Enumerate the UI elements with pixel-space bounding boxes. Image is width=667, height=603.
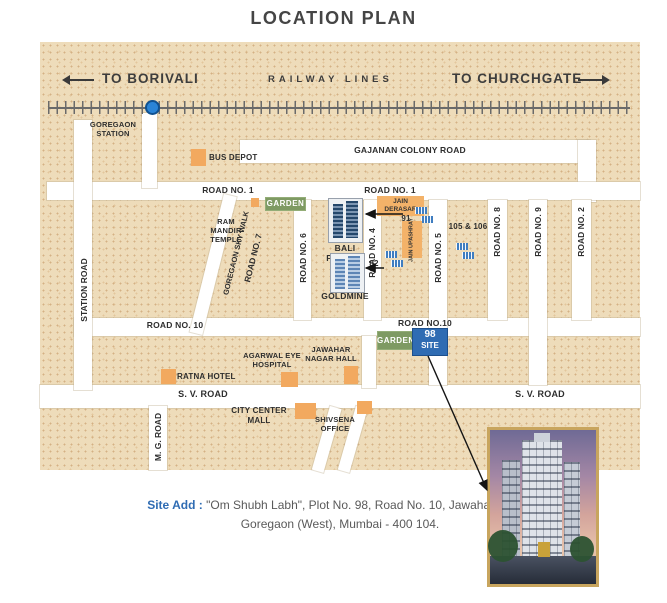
arrow-left-icon bbox=[64, 79, 94, 81]
bus-depot-label: BUS DEPOT bbox=[209, 153, 279, 163]
unit-block-icon bbox=[391, 260, 403, 267]
road-station bbox=[74, 120, 92, 390]
site-address-text-2: Goregaon (West), Mumbai - 400 104. bbox=[241, 517, 440, 531]
site-building-photo bbox=[487, 427, 599, 587]
building-tower-icon bbox=[346, 201, 358, 238]
building-tower-icon bbox=[333, 204, 343, 238]
city-center-mall-label: CITY CENTER MALL bbox=[222, 406, 296, 425]
garden-south-box: GARDEN bbox=[377, 331, 413, 350]
jawahar-hall-label: JAWAHAR NAGAR HALL bbox=[300, 345, 362, 363]
page-title: LOCATION PLAN bbox=[0, 8, 667, 29]
road-5-label: ROAD NO. 5 bbox=[433, 233, 443, 283]
to-borivali-label: TO BORIVALI bbox=[102, 71, 199, 86]
unit-block-icon bbox=[421, 216, 433, 223]
gajanan-colony-road-label: GAJANAN COLONY ROAD bbox=[330, 145, 490, 155]
ratna-hotel-icon bbox=[161, 369, 176, 384]
unit-block-icon bbox=[462, 252, 474, 259]
site-98-box: 98 SITE bbox=[413, 329, 447, 355]
bus-depot-icon bbox=[191, 149, 206, 166]
ratna-hotel-label: RATNA HOTEL bbox=[177, 372, 239, 382]
building-tower-icon bbox=[335, 259, 345, 289]
road-2-label: ROAD NO. 2 bbox=[576, 207, 586, 257]
photo-entrance bbox=[538, 542, 550, 557]
road-8-label: ROAD NO. 8 bbox=[492, 207, 502, 257]
palm-tree-icon bbox=[488, 530, 518, 562]
unit-block-icon bbox=[456, 243, 468, 250]
station-road-label: STATION ROAD bbox=[79, 258, 89, 321]
plot-82-label: 82 bbox=[366, 259, 382, 269]
station-marker-icon bbox=[145, 100, 160, 115]
road-10-west-label: ROAD NO. 10 bbox=[140, 320, 210, 330]
site-address-label: Site Add : bbox=[147, 498, 203, 512]
garden-north-box: GARDEN bbox=[265, 197, 306, 211]
road-4-label: ROAD NO. 4 bbox=[367, 228, 377, 278]
goregaon-station-label: GOREGAON STATION bbox=[80, 120, 146, 138]
unit-block-icon bbox=[385, 251, 397, 258]
road-10-east-label: ROAD NO.10 bbox=[392, 318, 458, 328]
agarwal-hospital-icon bbox=[281, 372, 298, 387]
jain-upashray-box: JAIN UPASHRAY bbox=[402, 221, 422, 258]
bali-prabhu-building-thumbnail bbox=[329, 199, 362, 242]
jawahar-hall-icon bbox=[344, 366, 358, 384]
mg-road-label: M. G. ROAD bbox=[153, 413, 163, 461]
unit-block-icon bbox=[415, 207, 427, 214]
road-6-label: ROAD NO. 6 bbox=[298, 233, 308, 283]
road-no-5 bbox=[429, 200, 447, 385]
goldmine-building-thumbnail bbox=[331, 254, 364, 292]
shivsena-office-icon bbox=[357, 401, 372, 414]
road-no-1 bbox=[47, 182, 640, 200]
plot-105-106-label: 105 & 106 bbox=[448, 222, 488, 232]
agarwal-hospital-label: AGARWAL EYE HOSPITAL bbox=[238, 351, 306, 369]
building-tower-icon bbox=[348, 256, 360, 289]
site-label: SITE bbox=[413, 341, 447, 351]
railway-lines-label: RAILWAY LINES bbox=[268, 74, 393, 85]
road-1-west-label: ROAD NO. 1 bbox=[196, 185, 260, 195]
palm-tree-icon bbox=[570, 536, 594, 562]
sv-road-west-label: S. V. ROAD bbox=[168, 389, 238, 400]
arrow-right-icon bbox=[578, 79, 608, 81]
to-churchgate-label: TO CHURCHGATE bbox=[452, 71, 582, 86]
shivsena-office-label: SHIVSENA OFFICE bbox=[309, 415, 361, 433]
road-9-label: ROAD NO. 9 bbox=[533, 207, 543, 257]
location-plan-page: LOCATION PLAN TO BORIVALI RAILWAY LINES … bbox=[0, 0, 667, 603]
road-1-east-label: ROAD NO. 1 bbox=[358, 185, 422, 195]
railway-track-icon bbox=[48, 101, 630, 114]
jain-upashray-label: JAIN UPASHRAY bbox=[409, 217, 416, 261]
ram-mandir-label: RAM MANDIR TEMPLE bbox=[205, 217, 247, 244]
site-address-text-1: "Om Shubh Labh", Plot No. 98, Road No. 1… bbox=[206, 498, 533, 512]
site-number: 98 bbox=[413, 329, 447, 341]
goldmine-label: GOLDMINE bbox=[314, 291, 376, 301]
road-minor-vertical bbox=[362, 336, 376, 388]
garden-dot-icon bbox=[251, 198, 259, 207]
sv-road-east-label: S. V. ROAD bbox=[505, 389, 575, 400]
photo-roof bbox=[534, 433, 550, 442]
